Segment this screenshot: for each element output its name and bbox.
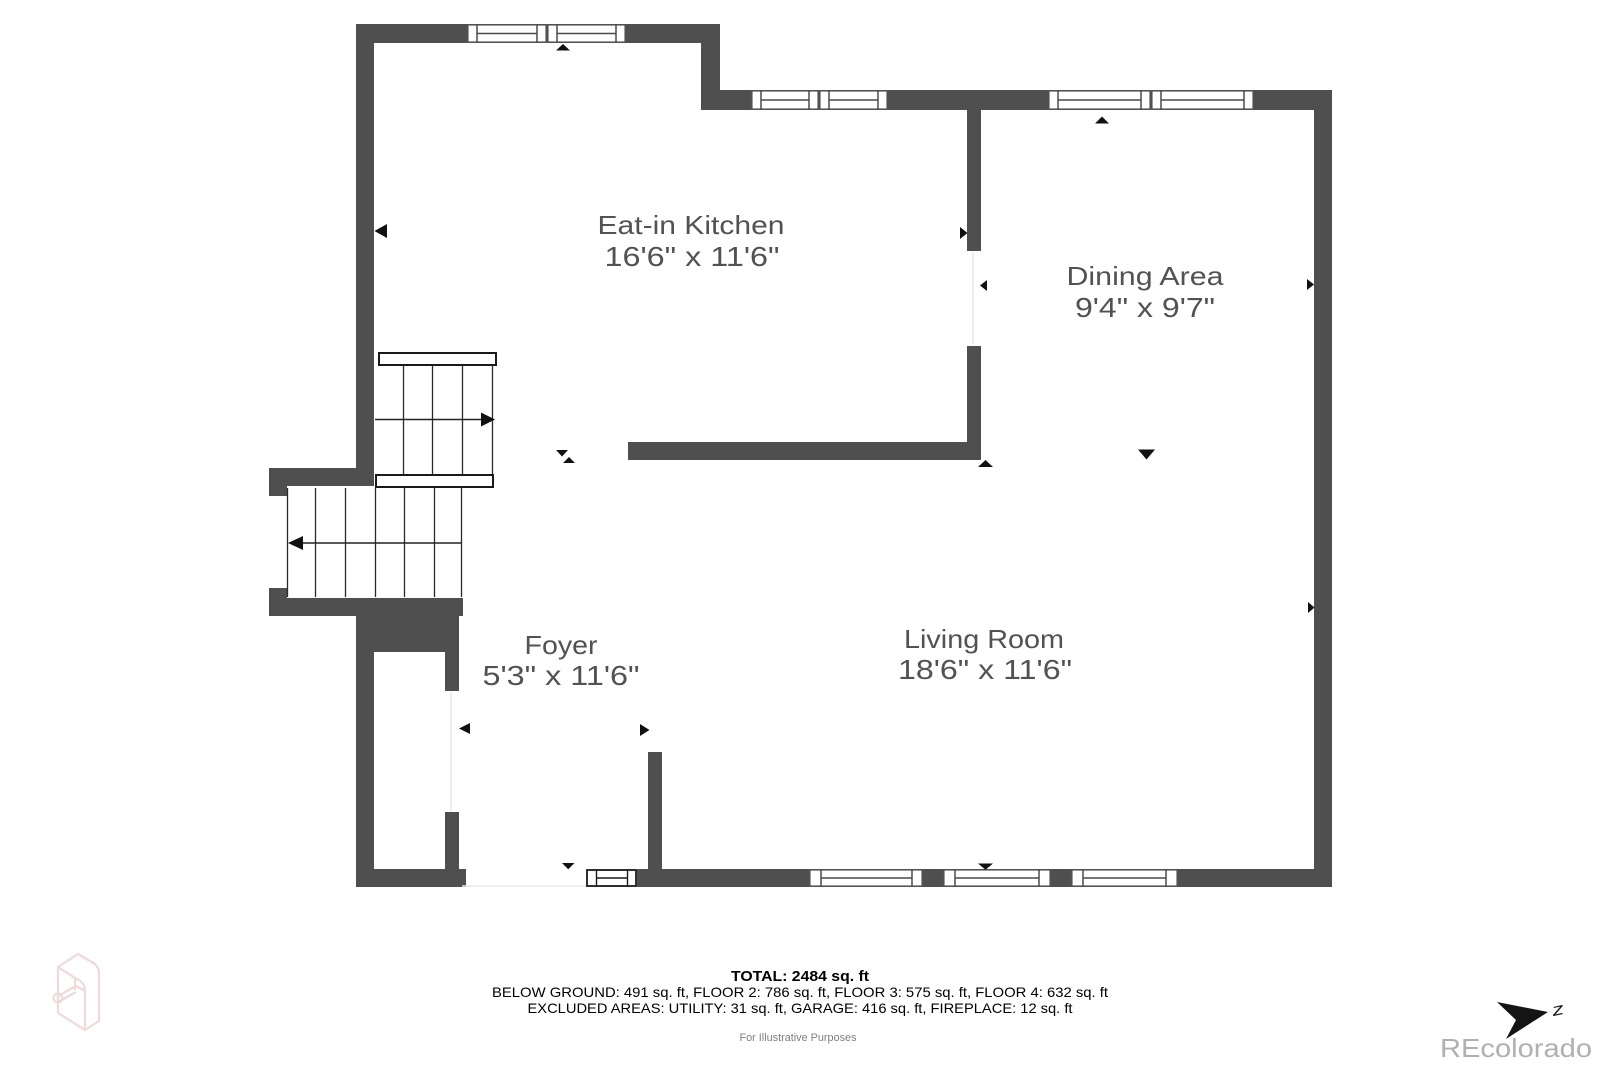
svg-text:18'6" x 11'6": 18'6" x 11'6" bbox=[898, 654, 1072, 685]
svg-text:Foyer: Foyer bbox=[525, 630, 598, 660]
svg-text:TOTAL: 2484 sq. ft: TOTAL: 2484 sq. ft bbox=[731, 969, 869, 985]
svg-text:For Illustrative Purposes: For Illustrative Purposes bbox=[740, 1032, 857, 1044]
svg-text:5'3" x 11'6": 5'3" x 11'6" bbox=[483, 660, 640, 691]
svg-text:16'6" x 11'6": 16'6" x 11'6" bbox=[605, 241, 780, 272]
svg-text:EXCLUDED AREAS: UTILITY: 31 sq: EXCLUDED AREAS: UTILITY: 31 sq. ft, GARA… bbox=[528, 1000, 1073, 1016]
svg-text:Eat-in Kitchen: Eat-in Kitchen bbox=[598, 210, 785, 240]
svg-text:Dining Area: Dining Area bbox=[1067, 261, 1225, 291]
svg-text:BELOW GROUND: 491 sq. ft, FLOO: BELOW GROUND: 491 sq. ft, FLOOR 2: 786 s… bbox=[492, 984, 1108, 1000]
svg-text:Living Room: Living Room bbox=[904, 624, 1064, 654]
svg-text:9'4" x 9'7": 9'4" x 9'7" bbox=[1075, 292, 1215, 323]
svg-text:REcolorado: REcolorado bbox=[1440, 1033, 1592, 1063]
